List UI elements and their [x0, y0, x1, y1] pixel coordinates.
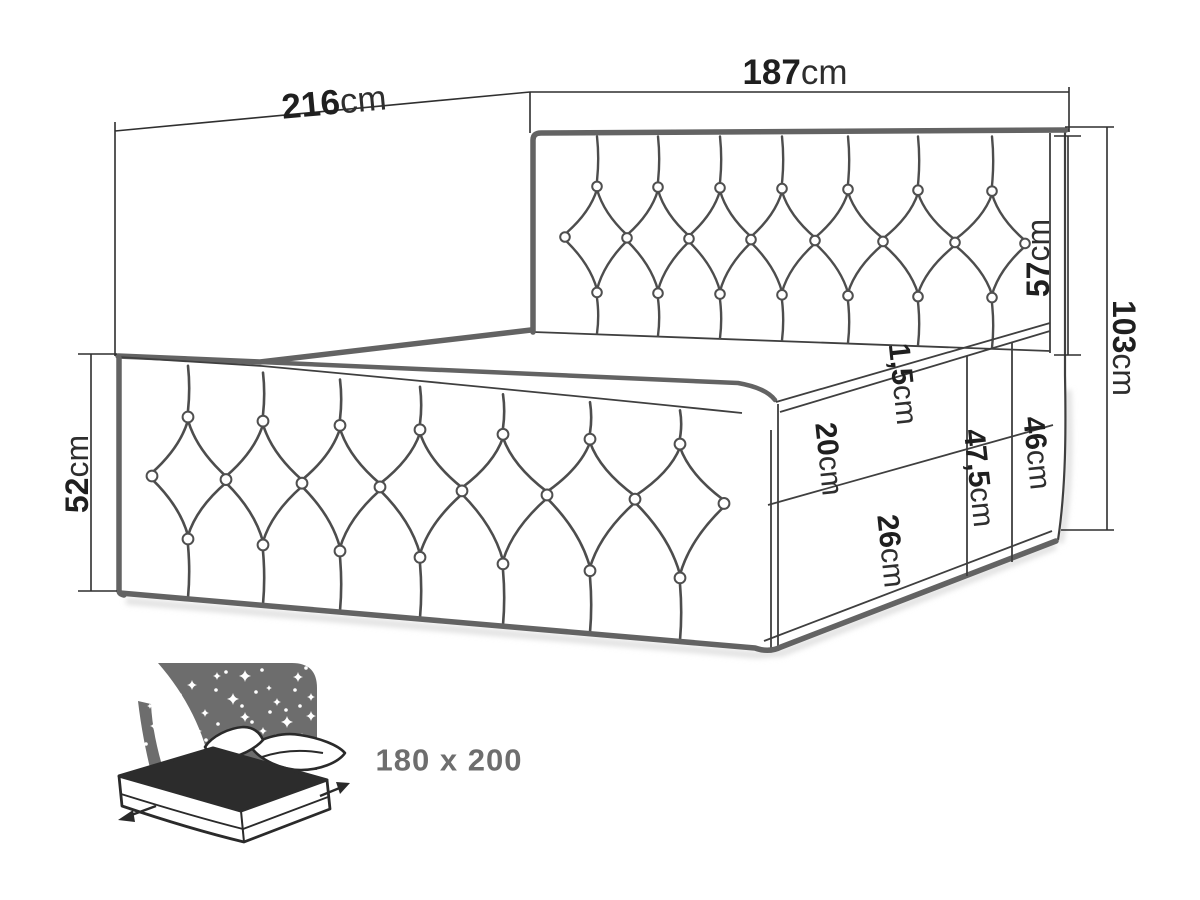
size-badge-label: 180 x 200 — [376, 743, 523, 778]
dim-103-label: 103cm — [1106, 300, 1142, 396]
bed-dimension-diagram: 216cm 187cm 57cm 103cm 52cm 1,5cm 20cm 4… — [0, 0, 1200, 900]
size-badge: 180 x 200 — [118, 663, 522, 842]
dim-187-lines — [530, 87, 1069, 132]
dim-57-label: 57cm — [1020, 219, 1056, 297]
dim-216-label: 216cm — [280, 78, 388, 126]
dim-187-label: 187cm — [742, 53, 847, 92]
icon-moon-sliver — [138, 701, 164, 772]
dim-52-label: 52cm — [59, 435, 95, 513]
bed-night-icon — [118, 663, 350, 842]
dim-216-lines — [115, 92, 530, 356]
